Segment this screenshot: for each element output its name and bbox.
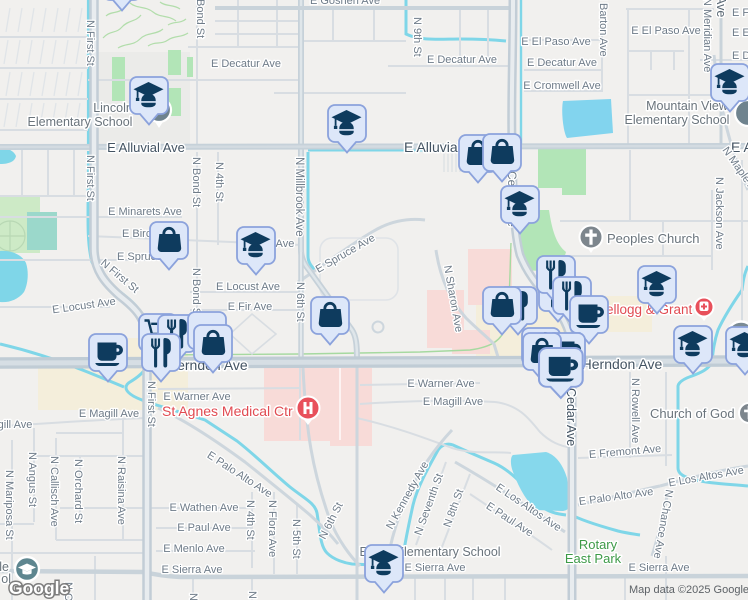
svg-text:Kellogg & Grant: Kellogg & Grant xyxy=(597,302,693,317)
svg-text:Elementary School: Elementary School xyxy=(28,115,133,129)
svg-text:N Effie St: N Effie St xyxy=(187,593,199,600)
svg-text:Rotary: Rotary xyxy=(579,537,618,552)
svg-text:E Goshen Ave: E Goshen Ave xyxy=(310,0,380,7)
svg-text:E Sierra Ave: E Sierra Ave xyxy=(405,562,466,574)
svg-text:E Warner Ave: E Warner Ave xyxy=(407,378,474,390)
svg-text:E Decatur Av: E Decatur Av xyxy=(732,50,748,62)
svg-text:N Angus St: N Angus St xyxy=(26,452,38,507)
svg-text:N Bond St: N Bond St xyxy=(194,0,206,38)
svg-text:N Flora Ave: N Flora Ave xyxy=(266,500,278,557)
svg-text:E Sierra Ave: E Sierra Ave xyxy=(162,564,223,576)
svg-text:E Decatur Ave: E Decatur Ave xyxy=(527,57,597,69)
svg-text:Peoples Church: Peoples Church xyxy=(607,231,700,246)
svg-text:Elementary School: Elementary School xyxy=(625,113,730,127)
svg-text:E Magill Ave: E Magill Ave xyxy=(0,419,32,431)
svg-text:E Magill Ave: E Magill Ave xyxy=(79,408,139,420)
svg-text:N Orchard St: N Orchard St xyxy=(72,459,84,523)
svg-text:Google: Google xyxy=(9,578,70,598)
svg-text:Church of God: Church of God xyxy=(650,406,735,421)
svg-text:E Cromwell Ave: E Cromwell Ave xyxy=(523,80,600,92)
svg-text:E Minarets Ave: E Minarets Ave xyxy=(108,206,182,218)
svg-text:N 5th St: N 5th St xyxy=(290,519,302,559)
svg-text:E Sierra Ave: E Sierra Ave xyxy=(629,562,690,574)
svg-text:N First St: N First St xyxy=(145,381,157,427)
svg-text:N First St: N First St xyxy=(84,155,96,201)
svg-text:Herndon Ave: Herndon Ave xyxy=(582,356,663,372)
svg-text:N First St: N First St xyxy=(84,20,96,66)
svg-text:E Warner Ave: E Warner Ave xyxy=(163,391,230,403)
svg-text:E Fairmont: E Fairmont xyxy=(732,7,748,19)
svg-text:E Magill Ave: E Magill Ave xyxy=(423,396,483,408)
svg-text:E El Paso Ave: E El Paso Ave xyxy=(631,25,701,37)
svg-text:E El Paso Ave: E El Paso Ave xyxy=(521,36,591,48)
svg-text:N Millbrook Ave: N Millbrook Ave xyxy=(293,157,305,237)
svg-text:E Decatur Ave: E Decatur Ave xyxy=(211,58,281,70)
svg-text:E El Paso: E El Paso xyxy=(732,27,748,39)
svg-text:Lincoln: Lincoln xyxy=(93,101,133,115)
svg-text:E Paul Ave: E Paul Ave xyxy=(177,522,231,534)
svg-text:N Callisch Ave: N Callisch Ave xyxy=(48,456,60,527)
svg-text:N 9th St: N 9th St xyxy=(411,17,423,57)
svg-text:St Agnes Medical Ctr: St Agnes Medical Ctr xyxy=(162,403,293,419)
svg-text:E Locust Ave: E Locust Ave xyxy=(216,281,280,293)
svg-text:E Menlo Ave: E Menlo Ave xyxy=(163,543,225,555)
svg-text:N Harrison Av: N Harrison Av xyxy=(246,591,258,600)
svg-text:E Decatur Ave: E Decatur Ave xyxy=(427,54,497,66)
svg-text:Ave: Ave xyxy=(714,0,728,17)
svg-text:N Jackson Ave: N Jackson Ave xyxy=(713,177,725,250)
svg-text:N Meridian Ave: N Meridian Ave xyxy=(701,0,713,72)
svg-text:N Bond St: N Bond St xyxy=(190,157,202,207)
svg-text:N Barton Ave: N Barton Ave xyxy=(597,0,609,57)
svg-text:E Fir Ave: E Fir Ave xyxy=(228,301,272,313)
svg-text:N 4th St: N 4th St xyxy=(213,162,225,202)
svg-text:Map data ©2025 Google: Map data ©2025 Google xyxy=(629,584,748,596)
svg-text:Cedar Ave: Cedar Ave xyxy=(564,388,578,446)
svg-text:N Mariposa St: N Mariposa St xyxy=(3,470,15,540)
svg-text:N Raisina Ave: N Raisina Ave xyxy=(115,456,127,525)
svg-text:N Bond St: N Bond St xyxy=(190,268,202,318)
svg-text:N 6th St: N 6th St xyxy=(294,282,306,322)
svg-text:East Park: East Park xyxy=(565,551,622,566)
svg-text:N Rowell Ave: N Rowell Ave xyxy=(629,378,641,443)
svg-text:N 4th St: N 4th St xyxy=(244,500,256,540)
svg-text:E Alluvial Ave: E Alluvial Ave xyxy=(107,140,185,155)
svg-text:E Wathen Ave: E Wathen Ave xyxy=(169,502,238,514)
